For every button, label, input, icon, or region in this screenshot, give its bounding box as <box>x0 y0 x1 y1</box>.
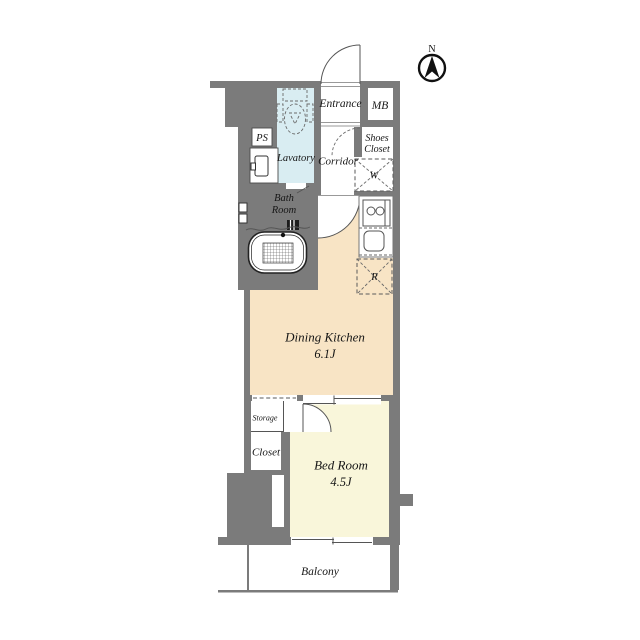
balcony-label: Balcony <box>301 566 340 578</box>
dining-kitchen-size: 6.1J <box>314 347 337 361</box>
pipe-space-label: PS <box>255 133 268 144</box>
lavatory-label: Lavatory <box>276 153 315 164</box>
washer-label: W <box>370 171 380 182</box>
sliding-door <box>303 395 381 405</box>
meter-box-label: MB <box>371 100 389 112</box>
closet-label: Closet <box>252 447 281 459</box>
shoes-closet-label-line2: Closet <box>364 144 390 155</box>
bed-room-size: 4.5J <box>330 475 353 489</box>
corridor-label: Corridor <box>318 156 358 168</box>
shower-control-icon <box>239 203 247 212</box>
bath-room-label-line1: Bath <box>274 193 294 204</box>
floor-plan: N Entrance MB Shoes Closet PS Lavatory C… <box>0 0 640 640</box>
bath-room-label-line2: Room <box>271 205 297 216</box>
kitchen-counter <box>359 196 393 257</box>
bath-door-opening <box>286 183 306 189</box>
bathtub-icon <box>249 232 307 273</box>
storage-label: Storage <box>253 414 278 423</box>
entrance-label: Entrance <box>318 98 361 110</box>
refrigerator-label: R <box>370 272 378 283</box>
north-compass-icon <box>419 55 445 81</box>
shower-control-icon <box>239 214 247 223</box>
floor-plan-drawing: N Entrance MB Shoes Closet PS Lavatory C… <box>0 0 640 640</box>
bed-room-label: Bed Room <box>314 458 368 473</box>
wall-slot <box>272 475 284 527</box>
shoes-closet-label-line1: Shoes <box>365 133 388 144</box>
dining-kitchen-label: Dining Kitchen <box>284 330 365 345</box>
faucet-icon <box>287 220 299 230</box>
compass-north-label: N <box>428 44 435 55</box>
balcony-window <box>291 537 373 545</box>
